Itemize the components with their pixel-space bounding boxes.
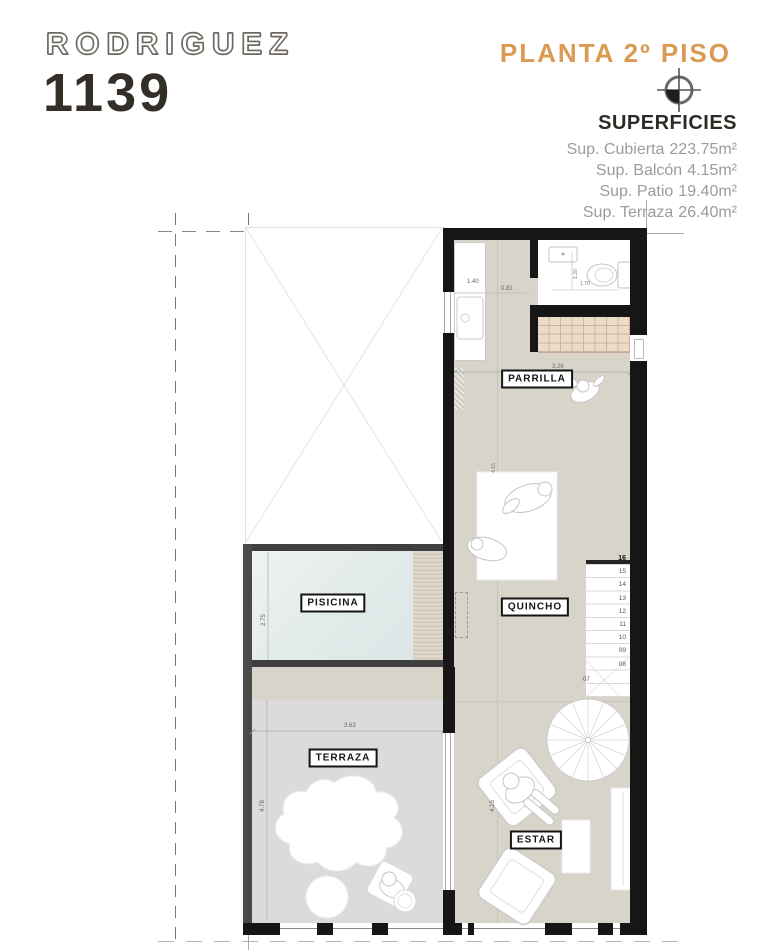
dim-terrace-width: 3.63 bbox=[344, 723, 356, 729]
stair-number: 12 bbox=[600, 605, 626, 618]
void-cross-lines bbox=[246, 228, 442, 542]
dim-pool-width: 2.75 bbox=[261, 614, 267, 626]
bathroom-sink bbox=[549, 247, 577, 262]
wall-bottom-seg bbox=[317, 923, 333, 935]
wall-top bbox=[443, 228, 647, 240]
armchair-2 bbox=[476, 845, 559, 928]
divider-wall-top bbox=[443, 667, 455, 733]
sliding-glass-line bbox=[445, 733, 446, 890]
sliding-glass-line bbox=[450, 733, 451, 890]
dim-grill-width: 3.26 bbox=[552, 364, 564, 370]
stair-step-numbers: 16 15 14 13 12 11 10 09 08 bbox=[600, 552, 626, 671]
dim-patio-width: 1.40 bbox=[467, 279, 479, 285]
bathroom-partition bbox=[530, 240, 538, 278]
window-line bbox=[450, 292, 451, 333]
wall-bottom-seg bbox=[545, 923, 572, 935]
stair-winder-number: 07 bbox=[583, 677, 590, 683]
stair-number: 10 bbox=[600, 631, 626, 644]
wall-bottom-seg bbox=[443, 923, 462, 935]
wall-bottom-seg bbox=[468, 923, 474, 935]
wall-bottom-seg bbox=[243, 923, 280, 935]
wall-bottom-corner bbox=[620, 923, 647, 935]
terrace-chair-person bbox=[366, 860, 416, 912]
toilet bbox=[587, 262, 631, 288]
terrace-organic-shape bbox=[275, 776, 402, 871]
room-label-pool: PISICINA bbox=[300, 594, 365, 613]
stair-number: 14 bbox=[600, 578, 626, 591]
dim-patio-width2: 0.81 bbox=[501, 286, 513, 292]
wall-left-main bbox=[443, 333, 454, 667]
dim-bath-width: 1.70 bbox=[580, 281, 590, 287]
wall-left-upper bbox=[443, 228, 454, 292]
room-label-grill: PARRILLA bbox=[501, 370, 573, 389]
coffee-table bbox=[562, 820, 590, 873]
stair-number: 13 bbox=[600, 592, 626, 605]
dim-living-depth: 4.15 bbox=[490, 800, 496, 812]
room-label-terrace: TERRAZA bbox=[309, 749, 378, 768]
stair-number: 09 bbox=[600, 644, 626, 657]
room-label-living: ESTAR bbox=[510, 831, 562, 850]
plan-overlay bbox=[0, 0, 778, 950]
stair-number: 08 bbox=[600, 658, 626, 671]
dim-bath-depth: 1.20 bbox=[573, 269, 579, 279]
dim-terrace-depth: 4.78 bbox=[260, 800, 266, 812]
terrace-round-table bbox=[306, 876, 348, 918]
wall-bottom-seg bbox=[372, 923, 388, 935]
stair-number: 11 bbox=[600, 618, 626, 631]
floor-plan-sheet: RODRIGUEZ 1139 PLANTA 2º PISO SUPERFICIE… bbox=[0, 0, 778, 950]
wall-bottom-seg bbox=[598, 923, 613, 935]
duct bbox=[634, 339, 644, 359]
kitchen-sink bbox=[457, 297, 483, 339]
stair-number: 16 bbox=[600, 552, 626, 565]
stair-number: 15 bbox=[600, 565, 626, 578]
spiral-staircase bbox=[547, 699, 629, 781]
grill-side-wall bbox=[530, 317, 538, 352]
window-line bbox=[444, 292, 445, 333]
wall-below-bathroom bbox=[530, 305, 647, 317]
dim-quincho: 4.15 bbox=[491, 463, 497, 473]
divider-wall-bottom bbox=[443, 890, 455, 923]
room-label-quincho: QUINCHO bbox=[501, 598, 569, 617]
